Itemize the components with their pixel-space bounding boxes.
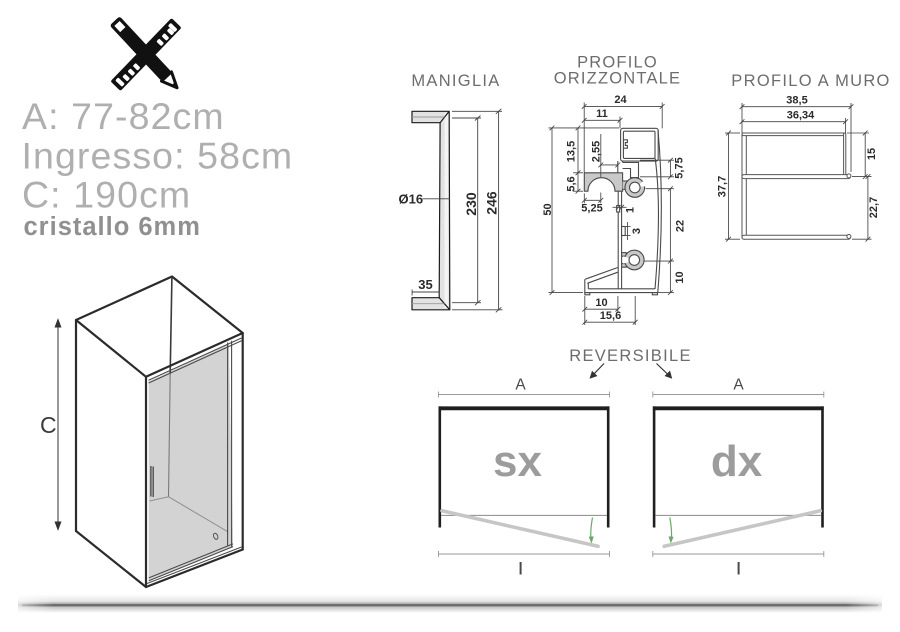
svg-text:24: 24 xyxy=(614,94,627,106)
svg-text:dx: dx xyxy=(711,437,763,486)
svg-text:22,7: 22,7 xyxy=(868,197,880,218)
svg-text:10: 10 xyxy=(674,271,686,283)
svg-text:10: 10 xyxy=(595,297,607,309)
svg-text:A: A xyxy=(733,377,744,394)
svg-text:Ingresso: 58cm: Ingresso: 58cm xyxy=(22,135,294,177)
svg-text:C: C xyxy=(40,412,57,438)
svg-text:Ø16: Ø16 xyxy=(399,192,424,207)
svg-text:5,75: 5,75 xyxy=(674,157,686,178)
svg-text:13,5: 13,5 xyxy=(566,141,578,162)
svg-text:37,7: 37,7 xyxy=(717,176,729,197)
svg-text:cristallo 6mm: cristallo 6mm xyxy=(24,213,201,241)
svg-text:sx: sx xyxy=(493,437,542,486)
svg-text:15,6: 15,6 xyxy=(600,310,621,322)
svg-text:36,34: 36,34 xyxy=(787,110,815,122)
svg-text:35: 35 xyxy=(418,277,432,292)
svg-text:ORIZZONTALE: ORIZZONTALE xyxy=(554,70,681,88)
svg-text:1: 1 xyxy=(625,207,637,213)
svg-text:2,55: 2,55 xyxy=(591,141,603,162)
svg-text:REVERSIBILE: REVERSIBILE xyxy=(569,347,692,365)
svg-text:C: 190cm: C: 190cm xyxy=(22,174,191,216)
svg-text:5,25: 5,25 xyxy=(581,203,602,215)
svg-text:3: 3 xyxy=(631,228,643,234)
svg-text:50: 50 xyxy=(542,203,554,215)
svg-text:A: A xyxy=(515,377,526,394)
svg-text:MANIGLIA: MANIGLIA xyxy=(411,72,500,90)
svg-text:246: 246 xyxy=(484,191,500,215)
svg-text:15: 15 xyxy=(866,148,878,160)
svg-text:PROFILO A MURO: PROFILO A MURO xyxy=(731,72,890,90)
svg-text:230: 230 xyxy=(463,192,479,216)
svg-text:11: 11 xyxy=(596,108,608,120)
svg-text:38,5: 38,5 xyxy=(786,95,807,107)
svg-text:5,6: 5,6 xyxy=(566,176,578,191)
svg-text:A: 77-82cm: A: 77-82cm xyxy=(22,95,225,137)
svg-text:22: 22 xyxy=(675,220,687,232)
